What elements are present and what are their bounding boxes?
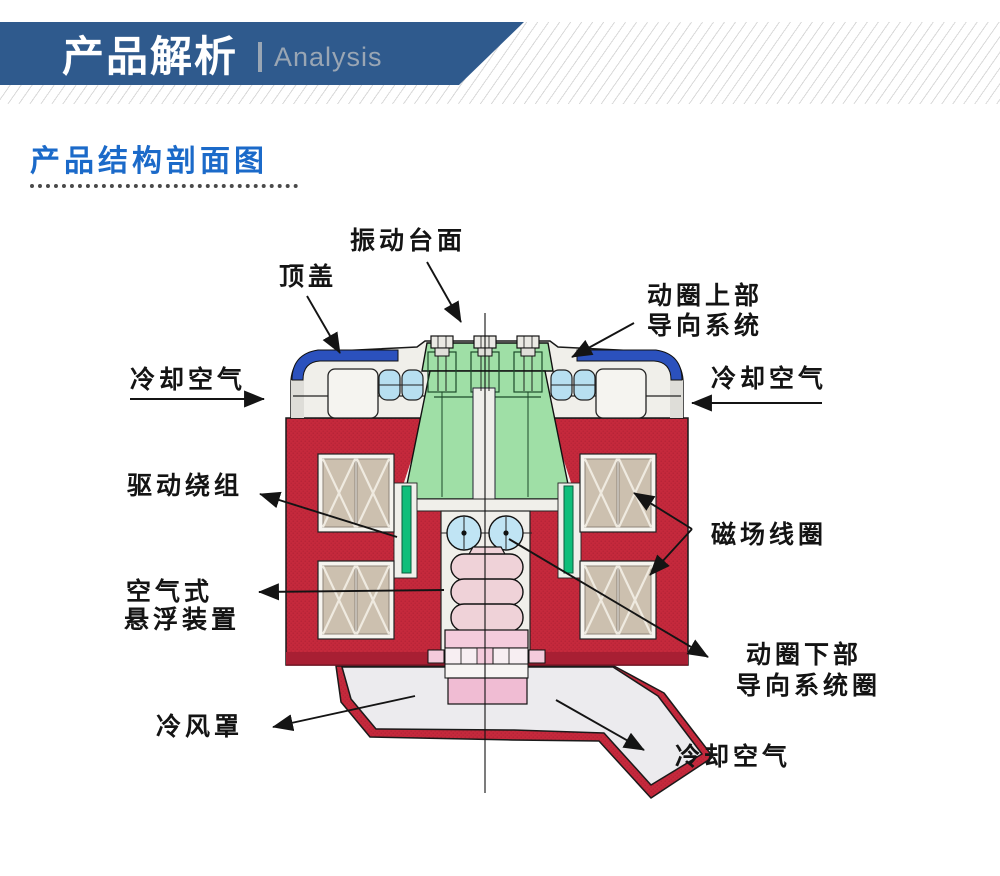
air-suspension-bellows (451, 547, 523, 631)
label-air-suspension-line2: 悬浮装置 (124, 607, 240, 635)
field-coil-left-top (318, 454, 394, 532)
armature-skirt-band (416, 499, 559, 511)
label-cooling-hood: 冷风罩 (156, 714, 243, 742)
field-coil-left-bottom (318, 561, 394, 639)
deck-left-shoulder (291, 380, 304, 418)
label-lower-guide-line1: 动圈下部 (746, 642, 862, 670)
drive-winding-right (564, 486, 573, 573)
label-air-suspension-line1: 空气式 (126, 579, 213, 607)
deck-block-right (596, 369, 646, 418)
label-field-coil: 磁场线圈 (711, 522, 827, 550)
arrow-table-surface (427, 262, 461, 322)
label-table-surface: 振动台面 (350, 228, 466, 256)
label-cooling-air-bottom: 冷却空气 (675, 744, 791, 772)
label-upper-guide-line1: 动圈上部 (647, 283, 763, 311)
page: 产品解析 Analysis 产品结构剖面图 (0, 0, 1000, 876)
deck-right-shoulder (670, 380, 683, 418)
drive-winding-left (402, 486, 411, 573)
label-upper-guide-line2: 导向系统 (647, 313, 763, 341)
label-drive-winding: 驱动绕组 (127, 473, 243, 501)
shaker-cross-section (0, 0, 1000, 876)
armature-center-slot (473, 388, 495, 499)
label-cooling-air-left: 冷却空气 (130, 367, 246, 395)
arrow-top-cover (307, 296, 340, 353)
field-coil-right-top (580, 454, 656, 532)
product-structure-diagram: 振动台面 顶盖 动圈上部 导向系统 冷却空气 冷却空气 驱动绕组 磁场线圈 空气… (0, 0, 1000, 876)
label-top-cover: 顶盖 (279, 264, 337, 292)
label-cooling-air-right: 冷却空气 (711, 366, 827, 394)
deck-block-left (328, 369, 378, 418)
label-lower-guide-line2: 导向系统圈 (736, 673, 881, 701)
field-coil-right-bottom (580, 561, 656, 639)
